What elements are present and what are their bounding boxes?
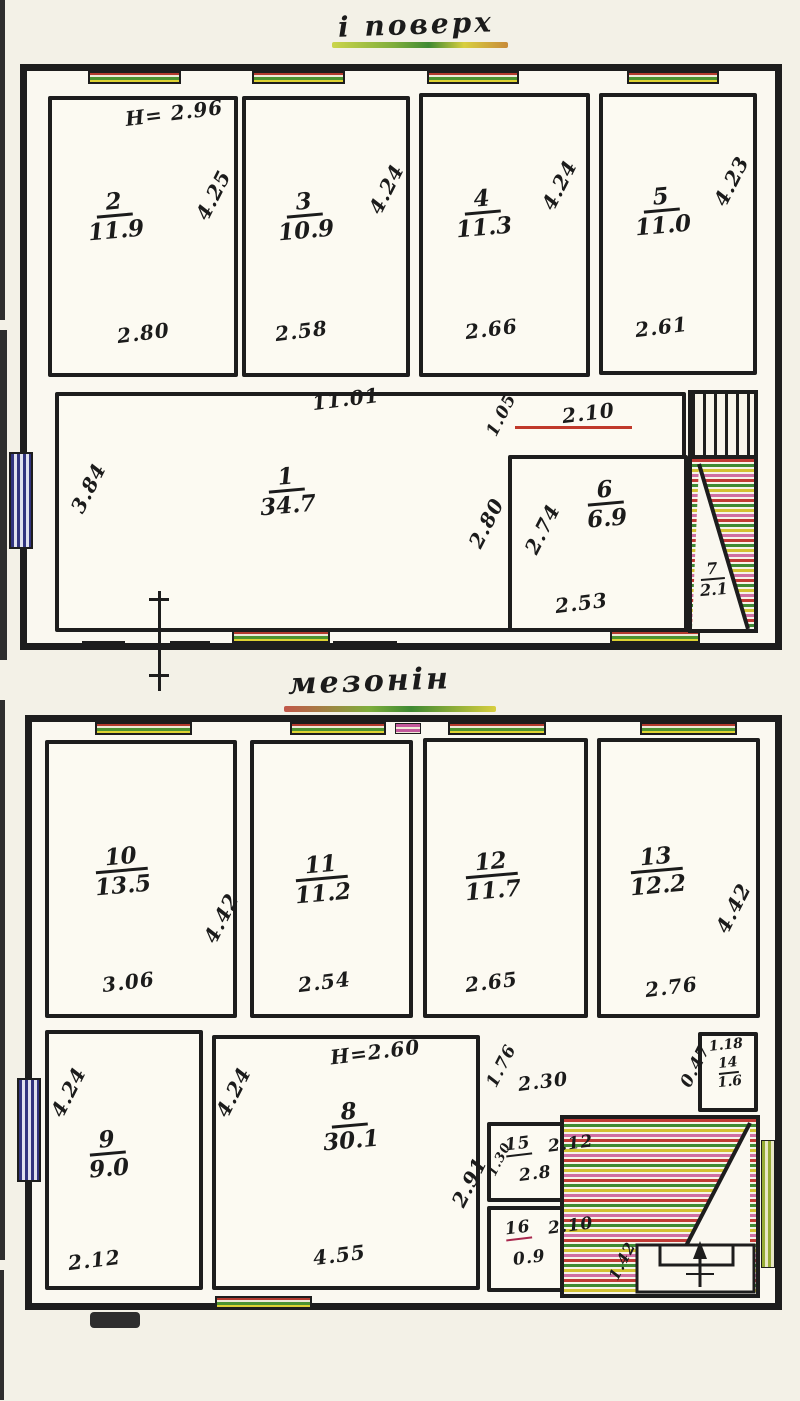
room-2-number: 2 [95,189,133,219]
section-mark-tick [149,674,169,677]
room-1-label: 1 34.7 [240,461,334,523]
room-16-number: 16 [504,1217,532,1242]
section-mark-tick [149,598,169,601]
scan-edge-artifact [0,0,5,320]
scan-edge-artifact [0,1270,4,1400]
staircase-steps-first-floor [688,390,758,456]
room-9-number: 9 [88,1127,126,1157]
room-8-label: 8 30.1 [303,1096,397,1158]
room-16-area: 0.9 [512,1246,547,1270]
room-14-width-dim: 1.18 [708,1035,744,1056]
window-room-9-left [17,1078,41,1182]
window-room-13 [640,722,737,735]
window-room-3 [252,71,345,84]
room-15-area: 2.8 [518,1162,553,1186]
room-2-area: 11.9 [87,215,145,247]
room-9-area: 9.0 [88,1153,130,1184]
room-4-label: 4 11.3 [436,183,530,245]
room-13-area: 12.2 [629,870,687,902]
staircase-diagonal [692,459,754,629]
window-room-10 [95,722,192,735]
room-12-label: 12 11.7 [445,846,539,908]
scan-smudge [90,1312,140,1328]
window-bottom-wall [215,1296,312,1309]
room-2-label: 2 11.9 [68,186,162,248]
hall-width-dim-2: 2.30 [517,1068,570,1096]
room-11-label: 11 11.2 [275,849,369,911]
room-3-label: 3 10.9 [258,186,352,248]
window-room-11 [290,722,386,735]
window-room-4 [427,71,519,84]
scan-edge-artifact [0,700,5,1260]
room-9-label: 9 9.0 [61,1124,155,1186]
room-4-area: 11.3 [455,212,513,244]
room-6-area: 6.9 [586,503,628,534]
room-1-area: 34.7 [259,490,317,522]
staircase-label: 7 2.1 [686,559,739,601]
mezzanine-title: мезонін [287,661,451,702]
title-underline [284,706,496,712]
staircase-number: 7 [700,560,725,581]
room-5-area: 11.0 [634,210,692,242]
room-14-area: 1.6 [717,1073,743,1093]
room-8-number: 8 [330,1099,368,1129]
mezzanine-plan: Н=2.60 10 13.5 3.06 4.42 11 11.2 2.54 12… [25,715,782,1310]
room-10-label: 10 13.5 [75,841,169,903]
room-14-number: 14 [717,1054,738,1075]
room-13-label: 13 12.2 [610,841,704,903]
first-floor-title: і поверх [337,5,494,43]
room-8-area: 30.1 [322,1125,380,1157]
window-room-1-left [9,452,33,549]
room-12-area: 11.7 [464,875,522,907]
room-6-number: 6 [586,477,624,507]
room-11-area: 11.2 [294,878,352,910]
staircase-first-floor [688,455,758,633]
room-5-number: 5 [642,184,680,214]
scan-edge-artifact [0,330,7,660]
room-4-number: 4 [463,186,501,216]
window-right-wall [761,1140,775,1268]
room-1-number: 1 [267,464,305,494]
window-room-5 [627,71,719,84]
room-5-label: 5 11.0 [615,181,709,243]
first-floor-plan: Н= 2.96 2 11.9 2.80 4.25 3 10.9 2.58 4.2… [20,64,782,650]
staircase-area: 2.1 [693,578,734,601]
hall-width-dim-1: 1.76 [482,1041,520,1091]
window-room-2 [88,71,181,84]
room-6-label: 6 6.9 [559,474,653,536]
scan-color-artifact [395,723,421,734]
room-3-area: 10.9 [277,215,335,247]
window-room-12 [448,722,546,735]
title-underline [332,42,508,48]
room-10-area: 13.5 [94,870,152,902]
room-14-label: 1.18 14 1.6 [697,1034,758,1094]
room-3-number: 3 [285,189,323,219]
